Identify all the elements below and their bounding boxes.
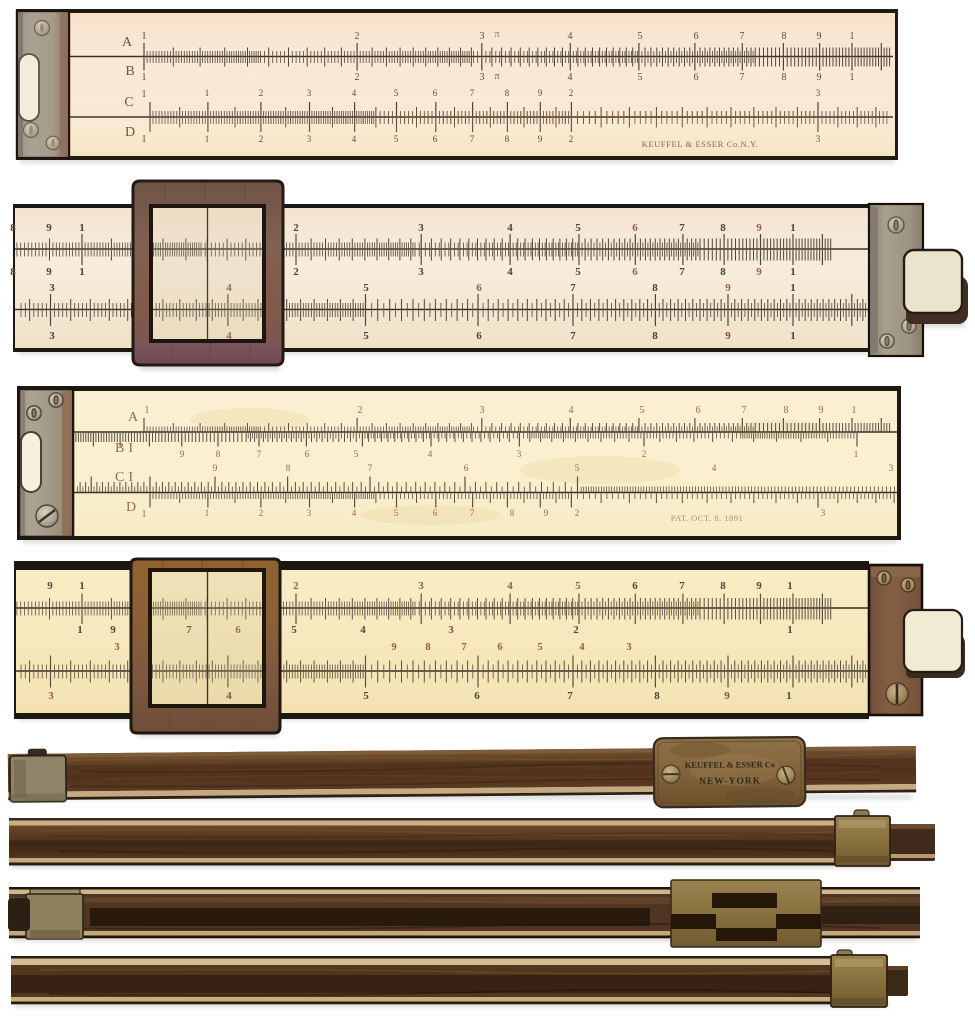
svg-text:5: 5 xyxy=(638,31,643,42)
svg-text:7: 7 xyxy=(470,88,475,98)
svg-text:3: 3 xyxy=(114,642,119,653)
svg-text:1: 1 xyxy=(205,508,210,518)
svg-text:1: 1 xyxy=(790,266,796,278)
svg-text:4: 4 xyxy=(568,31,573,42)
svg-text:2: 2 xyxy=(355,31,360,42)
svg-text:8: 8 xyxy=(425,642,430,653)
svg-text:3: 3 xyxy=(307,134,312,144)
svg-text:8: 8 xyxy=(784,405,789,416)
svg-text:4: 4 xyxy=(579,642,585,653)
svg-text:5: 5 xyxy=(575,580,581,592)
svg-text:8: 8 xyxy=(720,580,726,592)
svg-text:5: 5 xyxy=(575,222,581,234)
svg-text:A: A xyxy=(122,35,133,50)
svg-text:2: 2 xyxy=(569,134,574,144)
svg-text:7: 7 xyxy=(257,450,262,460)
svg-text:π: π xyxy=(494,71,499,82)
svg-text:9: 9 xyxy=(756,580,762,592)
svg-text:8: 8 xyxy=(652,282,658,294)
svg-text:C: C xyxy=(124,95,133,110)
svg-text:6: 6 xyxy=(476,282,482,294)
svg-text:6: 6 xyxy=(694,72,699,83)
svg-text:3: 3 xyxy=(480,31,485,42)
svg-text:8: 8 xyxy=(652,330,658,342)
svg-text:8: 8 xyxy=(10,266,16,278)
svg-text:7: 7 xyxy=(742,405,747,416)
svg-text:6: 6 xyxy=(433,88,438,98)
svg-text:8: 8 xyxy=(782,72,787,83)
svg-text:9: 9 xyxy=(756,266,762,278)
svg-text:1: 1 xyxy=(787,624,793,636)
svg-text:4: 4 xyxy=(569,405,574,416)
svg-text:6: 6 xyxy=(696,405,701,416)
svg-text:8: 8 xyxy=(782,31,787,42)
svg-text:2: 2 xyxy=(293,266,299,278)
svg-text:7: 7 xyxy=(570,282,576,294)
svg-text:2: 2 xyxy=(293,580,299,592)
svg-text:9: 9 xyxy=(817,72,822,83)
svg-text:7: 7 xyxy=(567,690,573,702)
svg-text:1: 1 xyxy=(79,580,85,592)
svg-text:1: 1 xyxy=(850,31,855,42)
svg-text:CI: CI xyxy=(115,470,137,485)
svg-text:BI: BI xyxy=(115,441,137,456)
svg-text:9: 9 xyxy=(391,642,396,653)
svg-text:9: 9 xyxy=(47,580,53,592)
svg-text:7: 7 xyxy=(368,464,373,474)
svg-text:3: 3 xyxy=(480,72,485,83)
svg-text:3: 3 xyxy=(517,450,522,460)
svg-text:1: 1 xyxy=(850,72,855,83)
svg-text:3: 3 xyxy=(307,508,312,518)
svg-text:9: 9 xyxy=(819,405,824,416)
svg-text:1: 1 xyxy=(790,282,796,294)
svg-text:5: 5 xyxy=(575,266,581,278)
svg-text:7: 7 xyxy=(570,330,576,342)
svg-text:5: 5 xyxy=(354,450,359,460)
svg-text:7: 7 xyxy=(679,266,685,278)
svg-text:6: 6 xyxy=(433,508,438,518)
svg-text:6: 6 xyxy=(474,690,480,702)
svg-text:9: 9 xyxy=(725,282,731,294)
svg-text:8: 8 xyxy=(720,222,726,234)
svg-text:2: 2 xyxy=(573,624,579,636)
svg-text:2: 2 xyxy=(259,508,264,518)
svg-text:3: 3 xyxy=(418,266,424,278)
svg-text:7: 7 xyxy=(740,31,745,42)
svg-text:NEW-YORK: NEW-YORK xyxy=(699,776,761,787)
svg-text:9: 9 xyxy=(538,134,543,144)
svg-text:2: 2 xyxy=(259,134,264,144)
svg-text:2: 2 xyxy=(569,88,574,98)
svg-text:9: 9 xyxy=(538,88,543,98)
svg-text:PAT. OCT. 8. 1891: PAT. OCT. 8. 1891 xyxy=(671,513,744,523)
svg-text:3: 3 xyxy=(448,624,454,636)
svg-text:3: 3 xyxy=(49,330,55,342)
svg-text:5: 5 xyxy=(394,88,399,98)
svg-text:5: 5 xyxy=(537,642,542,653)
svg-text:7: 7 xyxy=(461,642,466,653)
svg-text:9: 9 xyxy=(46,266,52,278)
svg-text:1: 1 xyxy=(790,222,796,234)
svg-text:4: 4 xyxy=(712,464,717,474)
svg-text:3: 3 xyxy=(418,222,424,234)
svg-text:6: 6 xyxy=(464,464,469,474)
svg-text:7: 7 xyxy=(470,508,475,518)
svg-text:1: 1 xyxy=(79,266,85,278)
svg-text:9: 9 xyxy=(544,508,549,518)
svg-text:3: 3 xyxy=(816,88,821,98)
svg-text:8: 8 xyxy=(10,222,16,234)
svg-text:5: 5 xyxy=(394,134,399,144)
svg-text:1: 1 xyxy=(79,222,85,234)
svg-text:5: 5 xyxy=(394,508,399,518)
svg-text:2: 2 xyxy=(642,450,647,460)
svg-text:8: 8 xyxy=(505,134,510,144)
svg-text:2: 2 xyxy=(259,88,264,98)
svg-text:A: A xyxy=(128,410,139,425)
svg-text:2: 2 xyxy=(355,72,360,83)
svg-text:1: 1 xyxy=(787,580,793,592)
svg-text:KEUFFEL & ESSER Co: KEUFFEL & ESSER Co xyxy=(685,759,776,770)
svg-text:1: 1 xyxy=(205,88,210,98)
svg-text:3: 3 xyxy=(821,508,826,518)
svg-text:9: 9 xyxy=(180,450,185,460)
svg-text:3: 3 xyxy=(480,405,485,416)
svg-text:8: 8 xyxy=(216,450,221,460)
svg-text:5: 5 xyxy=(291,624,297,636)
svg-text:9: 9 xyxy=(110,624,116,636)
svg-text:1: 1 xyxy=(142,72,147,83)
svg-text:3: 3 xyxy=(307,88,312,98)
svg-text:8: 8 xyxy=(286,464,291,474)
svg-text:4: 4 xyxy=(360,624,366,636)
svg-text:4: 4 xyxy=(507,222,513,234)
svg-text:5: 5 xyxy=(640,405,645,416)
svg-text:2: 2 xyxy=(358,405,363,416)
svg-text:4: 4 xyxy=(507,580,513,592)
svg-text:8: 8 xyxy=(654,690,660,702)
svg-text:9: 9 xyxy=(724,690,730,702)
svg-text:9: 9 xyxy=(756,222,762,234)
svg-text:7: 7 xyxy=(679,580,685,592)
svg-text:1: 1 xyxy=(142,134,147,145)
svg-text:4: 4 xyxy=(352,88,357,98)
svg-text:B: B xyxy=(125,64,134,79)
svg-text:3: 3 xyxy=(816,134,821,144)
svg-text:3: 3 xyxy=(49,282,55,294)
svg-text:1: 1 xyxy=(145,405,150,416)
svg-text:6: 6 xyxy=(632,580,638,592)
svg-text:1: 1 xyxy=(852,405,857,416)
svg-text:4: 4 xyxy=(507,266,513,278)
svg-text:1: 1 xyxy=(77,624,83,636)
svg-text:2: 2 xyxy=(575,508,580,518)
svg-text:5: 5 xyxy=(363,330,369,342)
svg-text:1: 1 xyxy=(142,31,147,42)
svg-text:7: 7 xyxy=(679,222,685,234)
svg-text:6: 6 xyxy=(433,134,438,144)
svg-text:7: 7 xyxy=(470,134,475,144)
svg-text:5: 5 xyxy=(638,72,643,83)
svg-text:3: 3 xyxy=(418,580,424,592)
svg-text:1: 1 xyxy=(142,509,147,520)
svg-text:6: 6 xyxy=(476,330,482,342)
svg-text:1: 1 xyxy=(786,690,792,702)
svg-text:4: 4 xyxy=(352,134,357,144)
svg-text:6: 6 xyxy=(632,266,638,278)
svg-text:4: 4 xyxy=(568,72,573,83)
svg-text:6: 6 xyxy=(632,222,638,234)
svg-text:D: D xyxy=(125,125,135,140)
svg-text:3: 3 xyxy=(626,642,631,653)
svg-text:3: 3 xyxy=(889,464,894,474)
svg-text:2: 2 xyxy=(293,222,299,234)
svg-text:5: 5 xyxy=(363,690,369,702)
svg-text:9: 9 xyxy=(725,330,731,342)
svg-text:3: 3 xyxy=(48,690,54,702)
svg-text:4: 4 xyxy=(352,508,357,518)
svg-text:9: 9 xyxy=(817,31,822,42)
svg-text:D: D xyxy=(126,500,136,515)
svg-text:1: 1 xyxy=(142,89,147,100)
svg-text:1: 1 xyxy=(790,330,796,342)
svg-text:4: 4 xyxy=(428,450,433,460)
svg-text:9: 9 xyxy=(46,222,52,234)
svg-text:6: 6 xyxy=(497,642,502,653)
svg-text:6: 6 xyxy=(305,450,310,460)
svg-text:8: 8 xyxy=(505,88,510,98)
svg-text:π: π xyxy=(494,29,499,40)
svg-text:5: 5 xyxy=(363,282,369,294)
svg-text:5: 5 xyxy=(575,464,580,474)
svg-text:8: 8 xyxy=(720,266,726,278)
svg-text:1: 1 xyxy=(205,134,210,144)
svg-text:9: 9 xyxy=(213,464,218,474)
svg-text:7: 7 xyxy=(740,72,745,83)
svg-text:KEUFFEL & ESSER Co.N.Y.: KEUFFEL & ESSER Co.N.Y. xyxy=(642,139,759,149)
svg-text:6: 6 xyxy=(694,31,699,42)
svg-text:8: 8 xyxy=(510,508,515,518)
svg-text:1: 1 xyxy=(854,450,859,460)
